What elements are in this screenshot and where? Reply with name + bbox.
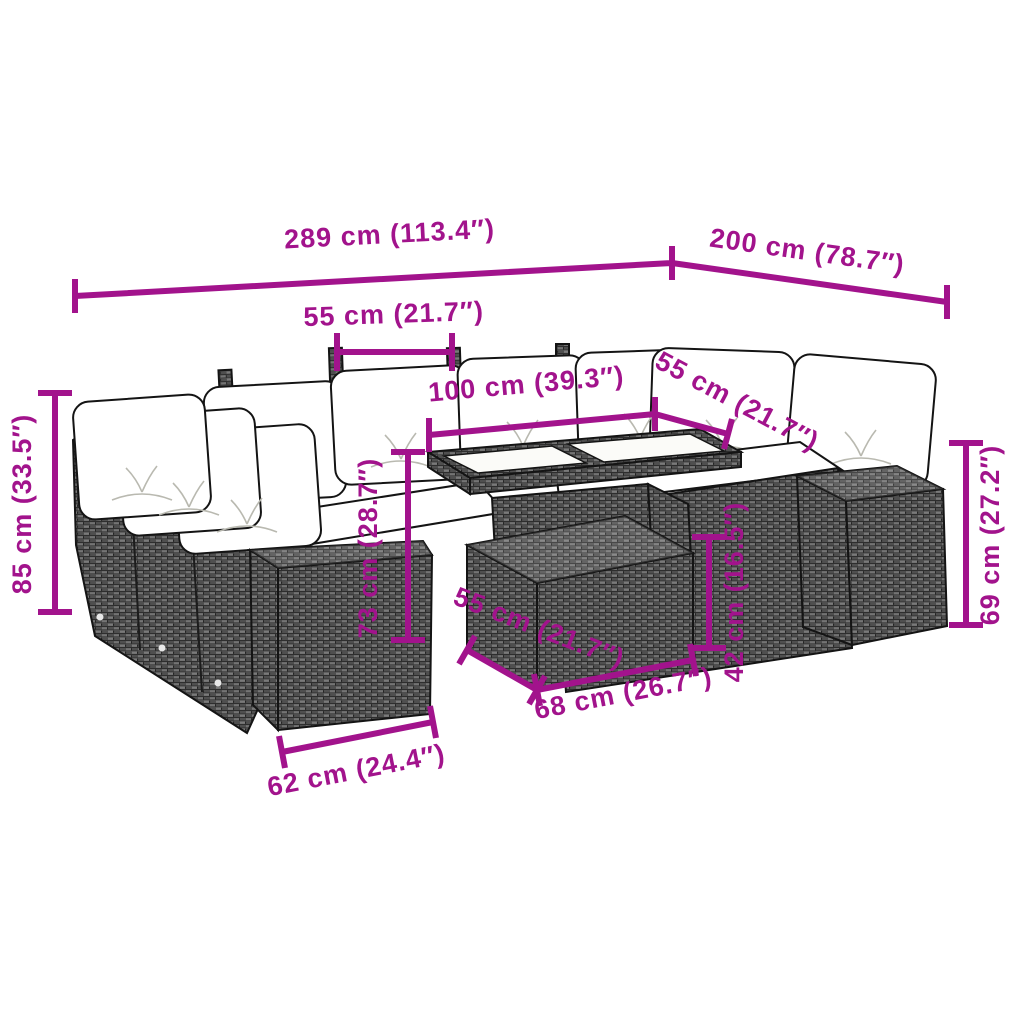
furniture-diagram-canvas: 289 cm (113.4″) 200 cm (78.7″) 55 cm (21… — [0, 0, 1024, 1024]
right-armrest — [797, 466, 947, 645]
product-dimension-diagram: 289 cm (113.4″) 200 cm (78.7″) 55 cm (21… — [0, 0, 1024, 1024]
armrest-front-face — [846, 489, 947, 645]
ottoman — [250, 541, 432, 730]
foot-dot — [159, 645, 166, 652]
dimension-label-42: 42 cm (16.5″) — [719, 502, 749, 683]
dimension-85 — [38, 393, 72, 612]
ottoman-side-face — [250, 550, 278, 730]
dimension-200 — [672, 263, 947, 319]
dimension-label-73: 73 cm (28.7″) — [353, 458, 383, 639]
foot-dot — [97, 614, 104, 621]
dimension-label-55-top: 55 cm (21.7″) — [303, 296, 484, 332]
dimension-label-289: 289 cm (113.4″) — [283, 214, 495, 255]
foot-dot — [215, 680, 222, 687]
armrest-side-face — [797, 476, 852, 645]
dimension-label-85: 85 cm (33.5″) — [7, 414, 37, 595]
dimension-label-69: 69 cm (27.2″) — [975, 445, 1005, 626]
